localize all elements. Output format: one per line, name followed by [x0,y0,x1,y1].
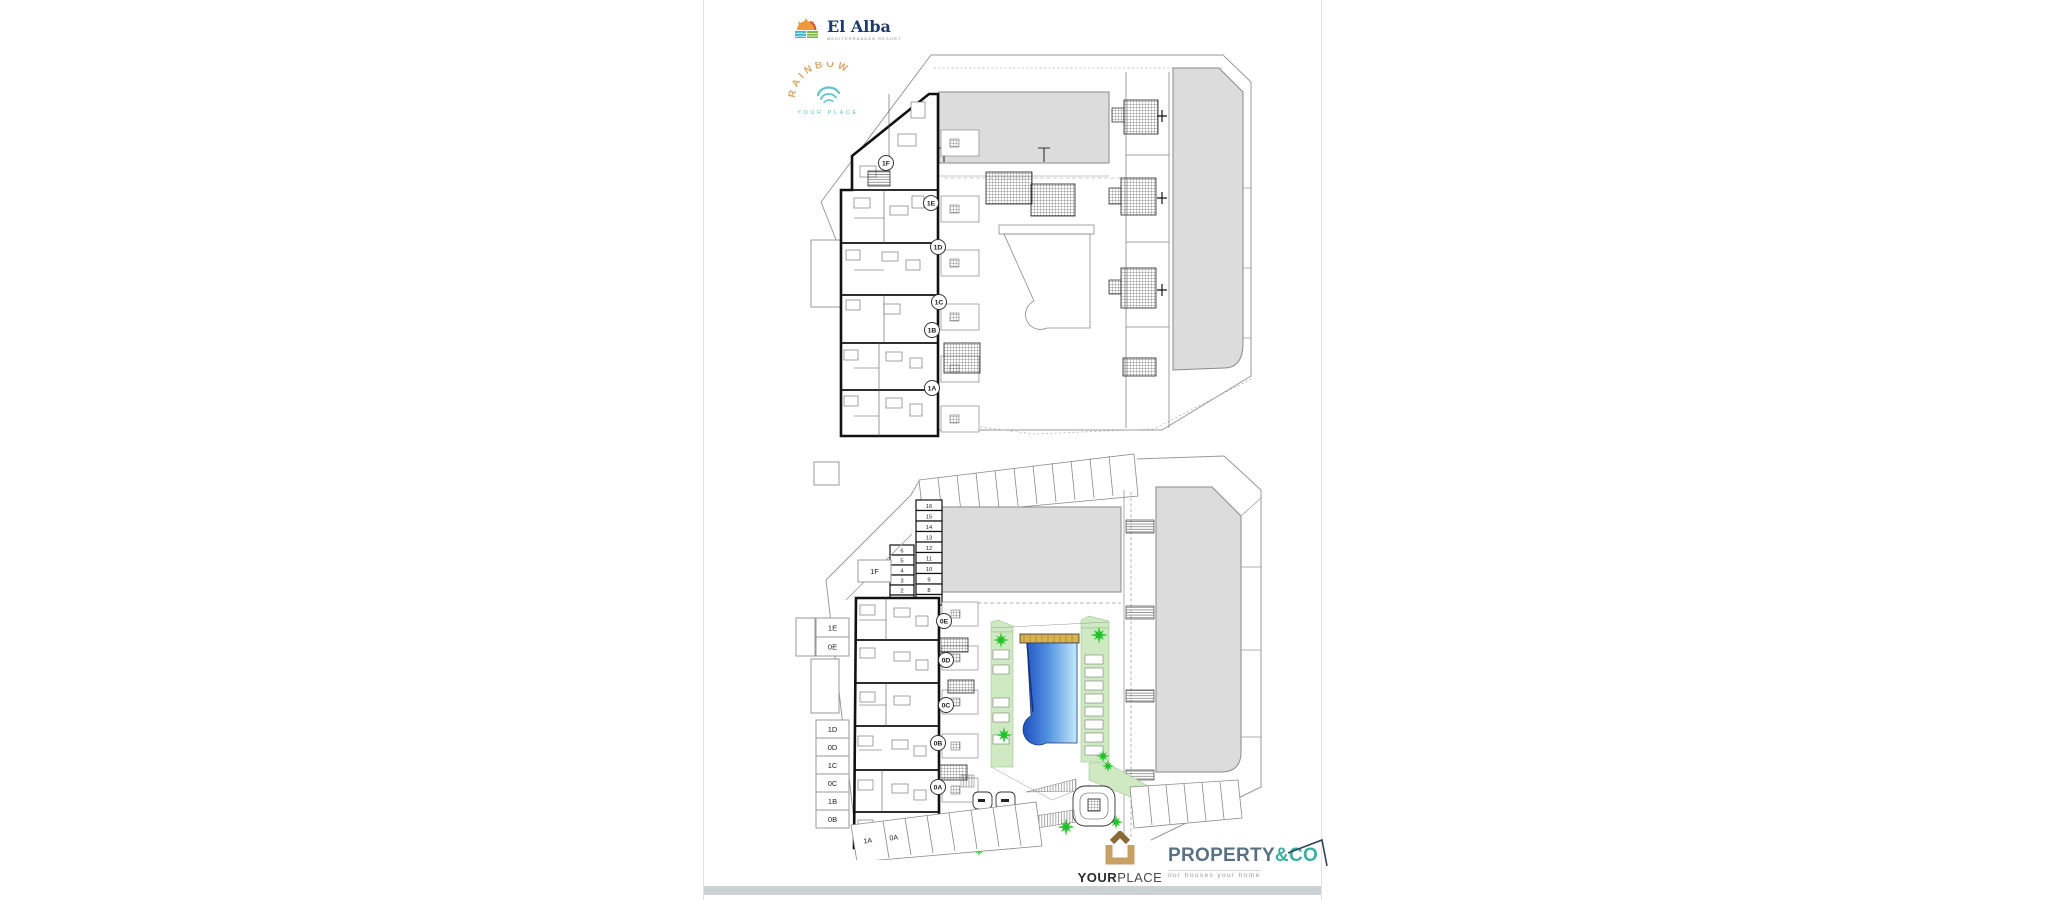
apartment-block [854,598,978,848]
unit-label: 1C [935,300,944,307]
unit-label: 1E [927,201,936,208]
unit-label: 1B [928,328,937,335]
yourplace-house-icon [1103,831,1137,865]
block-stairs [868,171,890,186]
anchor-symbols [1157,110,1167,296]
unit-label: 0C [942,703,951,710]
unit-label: 1A [928,386,937,393]
svg-text:1C: 1C [828,761,838,770]
property-co-tagline: our houses your home [1168,870,1261,880]
unit-label: 0B [934,741,943,748]
balconies [941,130,979,432]
svg-text:15: 15 [926,514,932,520]
svg-text:5: 5 [900,559,903,565]
svg-text:13: 13 [926,535,932,541]
gray-building-top [939,507,1121,592]
pool-outline [999,225,1094,329]
left-label-boxes: 1E 0E 1D 0D 1C 0C 1B 0B [796,462,849,828]
svg-text:9: 9 [927,577,930,583]
svg-text:1D: 1D [828,725,838,734]
svg-text:10: 10 [926,567,932,573]
ramp [961,775,974,787]
stairs [1126,520,1154,533]
page-bottom-bar [704,886,1321,895]
svg-text:1E: 1E [828,624,837,633]
gray-building-right [1156,487,1241,772]
side-plot [811,240,841,307]
ramp [1026,779,1076,792]
stair-core [1031,184,1075,216]
svg-text:0E: 0E [828,643,837,652]
stair-core [1121,268,1156,308]
property-co-name: PROPERTY&CO [1168,846,1318,865]
unit-label: 1F [882,161,890,168]
svg-text:1B: 1B [828,797,837,806]
svg-text:0C: 0C [828,779,838,788]
svg-text:0A: 0A [889,834,899,842]
parking-strip-bottom-right [1130,780,1242,828]
svg-text:6: 6 [900,549,903,555]
stair-core [1124,100,1158,134]
stair-core [948,680,974,693]
stairs [1126,690,1154,702]
el-alba-name: El Alba [827,19,901,35]
lower-floor-plan: 16 15 14 13 12 11 10 9 8 7 6 5 4 3 2 1 [794,450,1284,860]
svg-text:11: 11 [926,556,932,562]
document-page: El Alba MEDITERRANEAN RESORT RAINBOW YOU… [703,0,1322,900]
circulation-strip [1109,72,1169,428]
svg-text:0D: 0D [828,743,838,752]
svg-text:12: 12 [926,546,932,552]
unit-label: 0A [934,785,943,792]
yourplace-logo: YOURPLACE REAL ESTATE [1072,831,1168,894]
upper-floor-plan: 1F 1E 1D 1C 1B 1A [794,38,1274,458]
right-terrace-dividers [1243,188,1251,338]
gray-building-right [1173,68,1243,370]
svg-text:1F: 1F [870,567,879,576]
pool-deck [1020,634,1079,643]
unit-label: 0D [942,658,951,665]
svg-text:2: 2 [900,589,903,595]
svg-text:0B: 0B [828,815,837,824]
unit-label: 0E [940,619,949,626]
svg-text:8: 8 [927,588,930,594]
stair-core [944,343,980,373]
stair-core [1123,358,1156,376]
stair-core [986,172,1032,204]
svg-text:1A: 1A [863,837,873,845]
yourplace-name: YOURPLACE [1072,871,1168,884]
storage-lockers: 16 15 14 13 12 11 10 9 8 7 6 5 4 3 2 1 [890,500,942,605]
block-outer-walls [854,598,939,848]
svg-text:16: 16 [926,504,932,510]
unit-label: 1D [934,245,943,252]
stairs [1126,606,1154,619]
stair-core [938,638,968,652]
right-terrace-dividers [1241,498,1261,737]
property-co-logo: PROPERTY&CO our houses your home [1168,846,1318,881]
roofline-icon [1286,837,1332,869]
svg-text:3: 3 [900,579,903,585]
block-outer-walls [841,94,938,436]
screenshot-canvas: El Alba MEDITERRANEAN RESORT RAINBOW YOU… [0,0,2048,900]
svg-text:14: 14 [926,525,933,531]
stair-core [1121,178,1156,215]
